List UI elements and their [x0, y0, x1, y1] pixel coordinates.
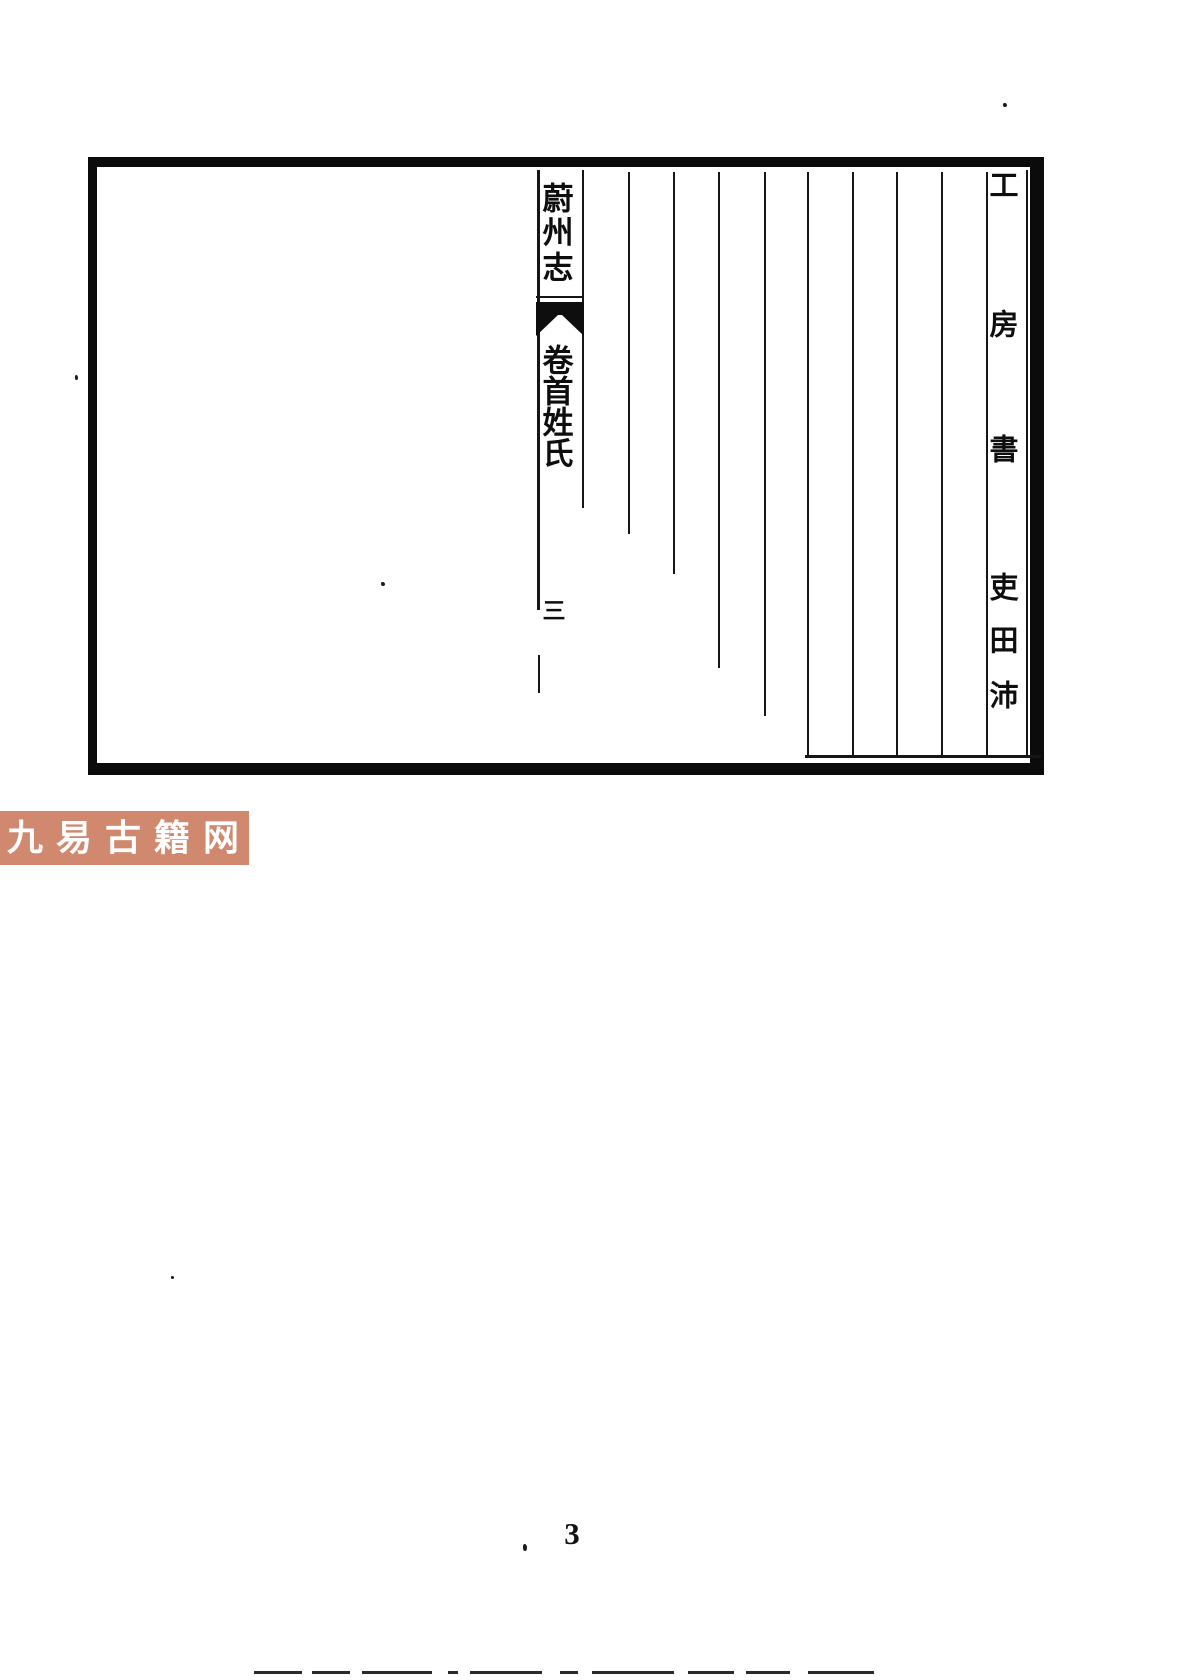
spine-folio-number: 三: [543, 600, 566, 623]
column-rule: [673, 172, 675, 574]
spine-section-char: 氏: [543, 440, 574, 471]
clerk-name-char: 工: [989, 172, 1018, 201]
dash-segment: [470, 1671, 542, 1674]
clerk-name-char: 田: [989, 627, 1018, 656]
scan-speck: [75, 375, 78, 380]
scan-speck: [1003, 103, 1007, 107]
spine-section-char: 首: [543, 378, 574, 409]
spine-section-char: 姓: [543, 409, 574, 440]
scan-speck: [523, 1544, 527, 1551]
column-rule: [628, 172, 630, 534]
dash-segment: [560, 1671, 578, 1674]
spine-section-char: 卷: [543, 347, 574, 378]
scanned-book-page: 蔚州志 卷首姓氏 三 工房書吏田沛 九易古籍网 3: [0, 0, 1202, 1680]
scan-speck: [171, 1276, 174, 1279]
dash-segment: [746, 1671, 790, 1674]
column-rule: [941, 172, 943, 757]
page-number: 3: [564, 1516, 580, 1552]
clerk-name-char: 沛: [989, 682, 1018, 711]
dash-segment: [592, 1671, 674, 1674]
column-rule: [986, 172, 988, 757]
watermark-badge: 九易古籍网: [0, 811, 249, 865]
dash-segment: [688, 1671, 734, 1674]
clerk-name-char: 書: [989, 436, 1018, 465]
spine-title-char: 州: [543, 219, 574, 250]
column-rule: [852, 172, 854, 757]
spine-title-char: 蔚: [543, 185, 574, 216]
watermark-text: 九易古籍网: [0, 820, 252, 856]
dash-segment: [312, 1671, 350, 1674]
clerk-name-char: 吏: [989, 574, 1018, 603]
dash-segment: [448, 1671, 458, 1674]
horizontal-rule: [805, 755, 1041, 758]
column-rule: [1026, 170, 1028, 757]
clerk-name-char: 房: [989, 311, 1018, 340]
spine-title-char: 志: [543, 254, 574, 285]
column-rule: [807, 172, 809, 757]
column-rule: [896, 172, 898, 757]
column-rule: [764, 172, 766, 716]
dash-segment: [362, 1671, 432, 1674]
column-rule: [538, 655, 540, 693]
scan-speck: [381, 582, 385, 586]
column-rule: [718, 172, 720, 668]
dash-segment: [254, 1671, 302, 1674]
fishtail-mark: [536, 302, 584, 338]
dash-segment: [808, 1671, 874, 1674]
horizontal-rule: [536, 296, 584, 298]
column-rule: [537, 170, 540, 610]
column-rule: [582, 170, 584, 508]
